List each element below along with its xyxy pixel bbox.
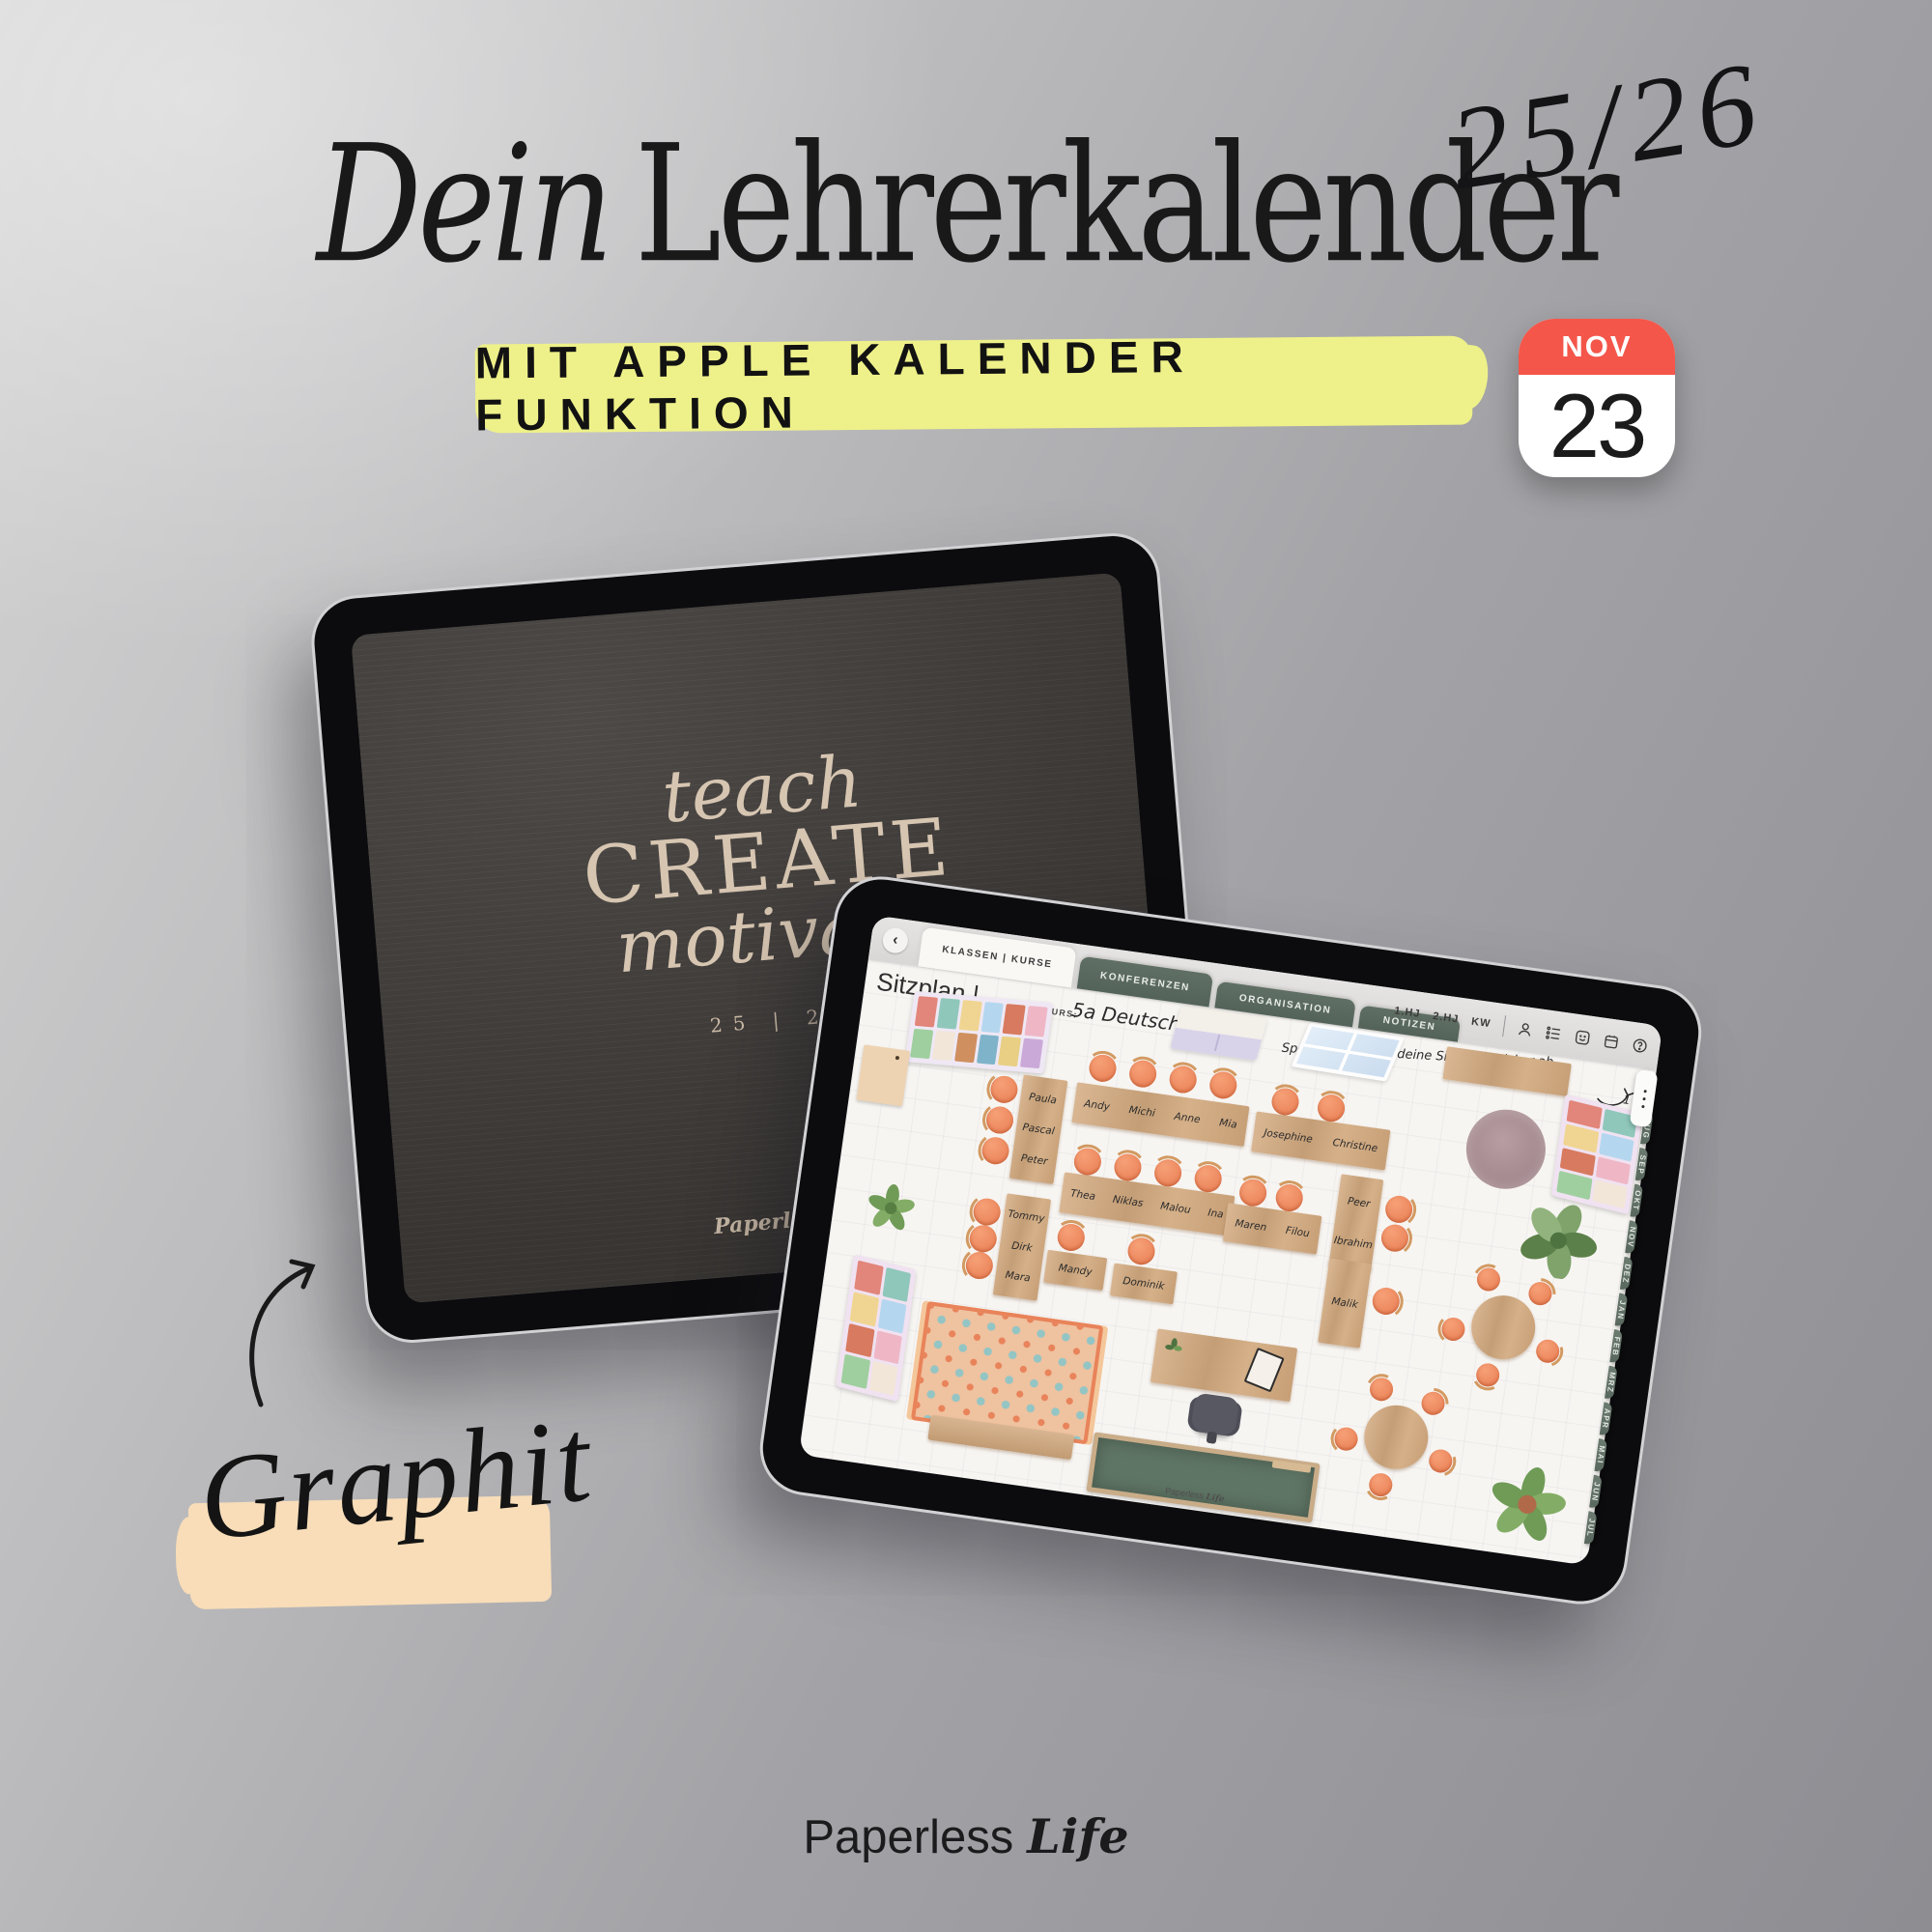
plant-sticker[interactable] [862,1179,921,1236]
desk-josephine-christine[interactable]: Josephine Christine [1251,1111,1390,1170]
shelf-right-sticker[interactable] [1551,1094,1643,1214]
student-name: Malik [1331,1296,1359,1310]
calendar-icon[interactable] [1602,1032,1620,1050]
student-name: Tommy [1008,1209,1045,1225]
round-rug-sticker[interactable] [1462,1104,1551,1194]
chair[interactable] [1237,1178,1268,1208]
graphit-arrow-icon [224,1248,340,1422]
chair[interactable] [1113,1152,1144,1183]
toolbar-hj2[interactable]: 2.HJ [1432,1010,1460,1026]
chair[interactable] [1383,1194,1414,1225]
student-name: Dirk [1011,1240,1034,1253]
sideboard-sticker[interactable] [904,991,1053,1074]
sticker-icon[interactable] [1574,1028,1592,1046]
desk-dominik[interactable]: Dominik [1110,1263,1178,1304]
chair[interactable] [1270,1087,1301,1118]
chair[interactable] [1428,1448,1454,1474]
app-screen: ‹ KLASSEN | KURSE KONFERENZEN ORGANISATI… [799,915,1662,1565]
feature-banner-text: MIT APPLE KALENDER FUNKTION [475,327,1473,440]
desk-maren-filou[interactable]: Maren Filou [1223,1203,1322,1254]
student-name: Mara [1005,1270,1031,1284]
chair[interactable] [1475,1266,1501,1293]
chair[interactable] [1369,1377,1395,1403]
student-name: Dominik [1122,1276,1165,1292]
student-name: Josephine [1264,1128,1314,1145]
chair[interactable] [980,1135,1011,1166]
feature-banner: MIT APPLE KALENDER FUNKTION [475,335,1473,433]
student-name: Peer [1347,1196,1371,1209]
poster: DeinLehrerkalender 25/26 MIT APPLE KALEN… [0,0,1932,1932]
back-button[interactable]: ‹ [881,926,909,954]
chair[interactable] [964,1250,995,1281]
desk-mandy[interactable]: Mandy [1043,1250,1107,1291]
desk-peer-ibrahim[interactable]: Peer Ibrahim [1328,1174,1383,1271]
chair[interactable] [1368,1472,1394,1498]
bookshelf-sticker[interactable] [836,1254,917,1402]
chair[interactable] [1527,1281,1553,1307]
calendar-day: 23 [1519,375,1675,477]
class-value[interactable]: 5a Deutsch [1070,998,1182,1037]
student-name: Mandy [1058,1263,1093,1277]
clipboard-icon [1244,1348,1285,1392]
back-icon: ‹ [892,931,899,950]
help-icon[interactable] [1631,1036,1649,1054]
student-name: Andy [1084,1098,1111,1112]
dots-icon [1641,1104,1644,1107]
student-name: Mia [1219,1118,1238,1130]
chair[interactable] [984,1105,1015,1136]
apple-calendar-icon: NOV 23 [1519,319,1675,477]
teacher-desk-sticker[interactable] [1151,1328,1297,1402]
chair[interactable] [1152,1157,1183,1188]
chair[interactable] [1316,1093,1347,1123]
chair[interactable] [1420,1390,1446,1416]
chair[interactable] [1072,1147,1103,1178]
student-name: Ibrahim [1333,1236,1373,1251]
chair[interactable] [1371,1286,1402,1317]
toolbar-kw[interactable]: KW [1470,1016,1492,1031]
dots-icon [1643,1089,1646,1092]
student-name: Ina [1207,1207,1224,1220]
chair[interactable] [1168,1065,1199,1095]
chair[interactable] [989,1074,1020,1105]
page-title-italic: Dein [317,110,610,298]
teacher-chair-sticker[interactable] [1190,1392,1239,1436]
student-name: Filou [1285,1226,1310,1239]
chair[interactable] [1127,1059,1158,1090]
student-name: Maren [1235,1218,1267,1233]
student-name: Thea [1069,1188,1095,1202]
user-icon[interactable] [1516,1020,1534,1038]
student-name: Peter [1020,1153,1048,1167]
dots-icon [1642,1096,1645,1099]
student-name: Malou [1160,1201,1192,1215]
chair[interactable] [1535,1338,1561,1364]
pinboard-sticker[interactable] [856,1044,910,1106]
desk-plant-icon [1162,1335,1186,1359]
chair[interactable] [1126,1236,1157,1266]
checklist-icon[interactable] [1545,1024,1563,1042]
student-name: Anne [1174,1111,1201,1124]
toolbar-hj1[interactable]: 1.HJ [1394,1005,1422,1020]
tablet-app: ‹ KLASSEN | KURSE KONFERENZEN ORGANISATI… [757,873,1704,1606]
toolbar-divider [1502,1015,1507,1037]
chair[interactable] [1056,1222,1087,1253]
chair[interactable] [1207,1070,1238,1101]
chair[interactable] [1475,1362,1501,1388]
student-name: Christine [1332,1138,1378,1154]
student-name: Paula [1029,1092,1058,1105]
chair[interactable] [1088,1053,1119,1084]
student-name: Pascal [1022,1122,1056,1137]
calendar-month: NOV [1519,319,1675,375]
monstera-sticker[interactable] [1511,1197,1605,1283]
student-name: Michi [1128,1105,1156,1119]
chair[interactable] [1379,1223,1410,1254]
desk-malik[interactable]: Malik [1318,1258,1372,1348]
brand-footer: PaperlessLife [0,1808,1932,1864]
chair[interactable] [1440,1316,1466,1342]
chair[interactable] [1333,1426,1359,1452]
student-name: Niklas [1112,1194,1144,1208]
chair[interactable] [1274,1182,1305,1213]
chair[interactable] [1193,1163,1224,1194]
cabinet-sticker[interactable] [1170,1006,1267,1061]
